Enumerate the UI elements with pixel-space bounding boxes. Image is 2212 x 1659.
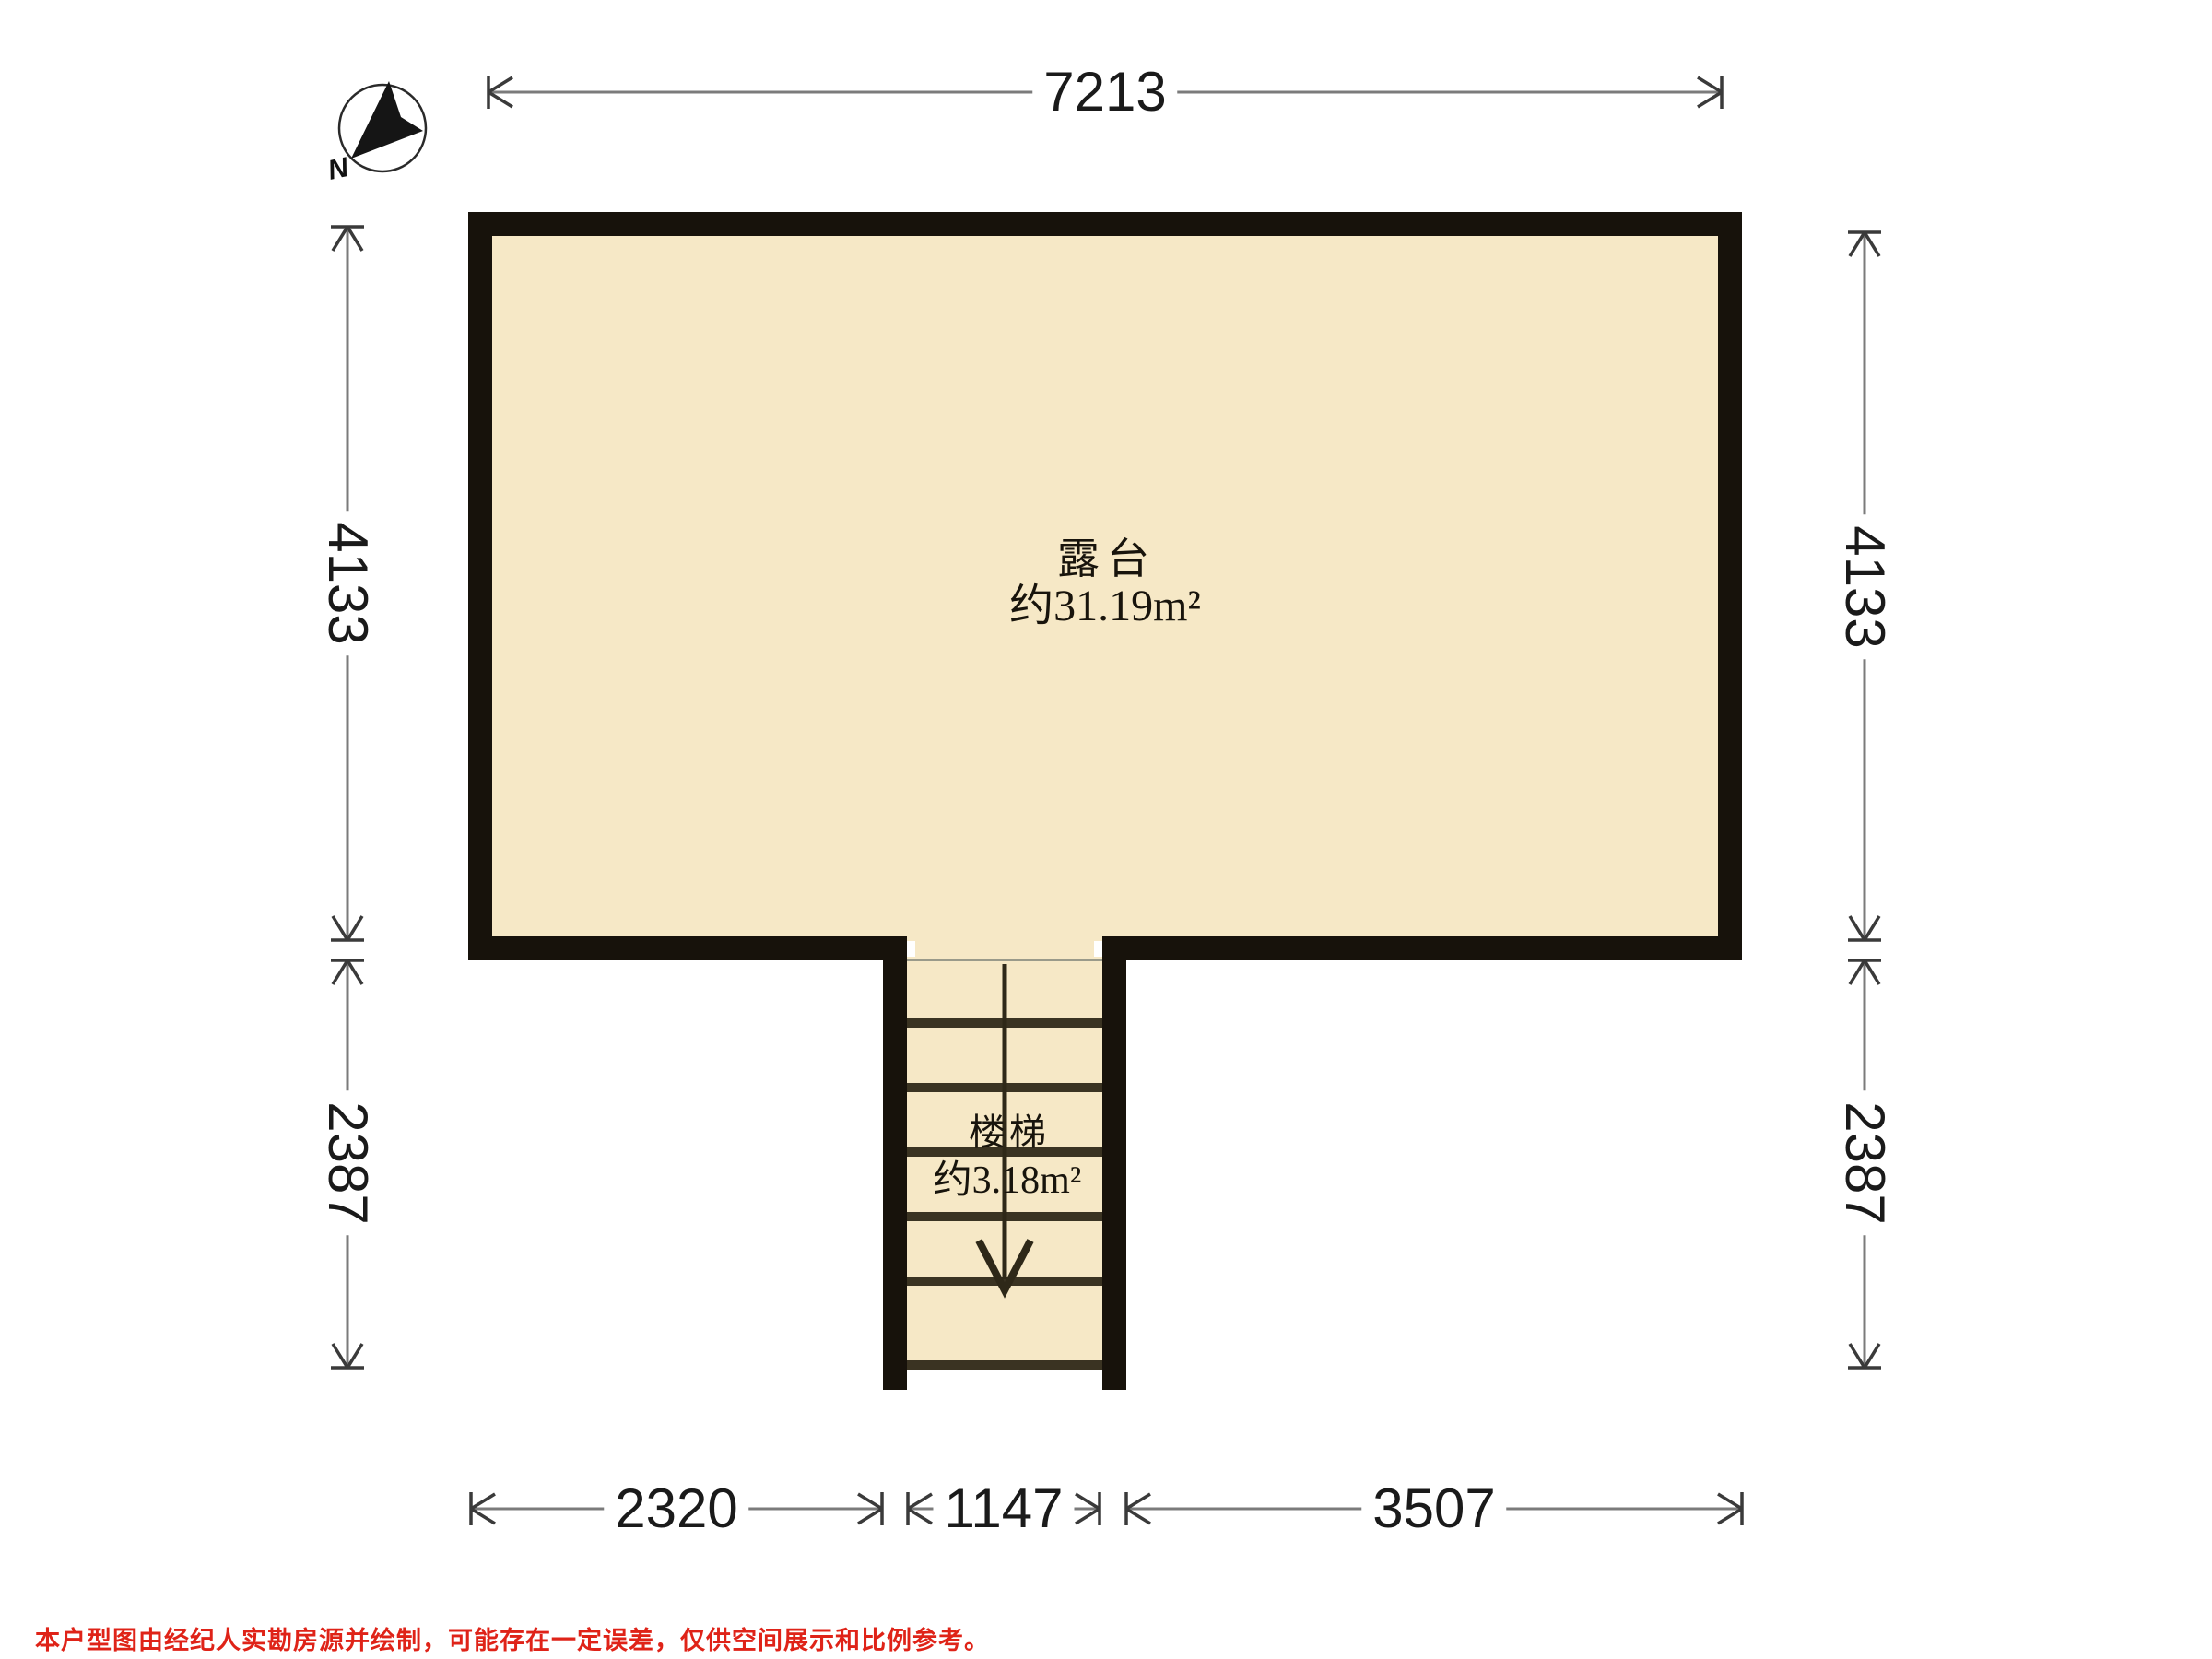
dim-right-upper: 4133 [1837,514,1892,659]
dim-top-width: 7213 [1032,65,1177,120]
room-stairs-area: 约3.18m² [934,1161,1082,1200]
dim-left-upper: 4133 [320,511,375,655]
dim-left-lower: 2387 [320,1090,375,1235]
stairwell-left-wall [883,960,907,1390]
floorplan-canvas: 7213 4133 2387 4133 2387 2320 1147 3507 … [0,0,2212,1659]
north-compass-icon [339,81,426,171]
room-terrace-area: 约31.19m² [1009,584,1201,629]
dim-bottom-center: 1147 [933,1481,1074,1536]
disclaimer-text: 本户型图由经纪人实勘房源并绘制，可能存在一定误差，仅供空间展示和比例参考。 [35,1620,990,1656]
room-stairs-name: 楼梯 [969,1114,1050,1151]
stairwell-right-wall [1102,960,1126,1390]
room-terrace-name: 露台 [1057,538,1157,581]
dim-bottom-right: 3507 [1361,1481,1506,1536]
dim-right-lower: 2387 [1837,1090,1892,1235]
floorplan-drawing [0,0,2212,1659]
dim-bottom-left: 2320 [604,1481,748,1536]
